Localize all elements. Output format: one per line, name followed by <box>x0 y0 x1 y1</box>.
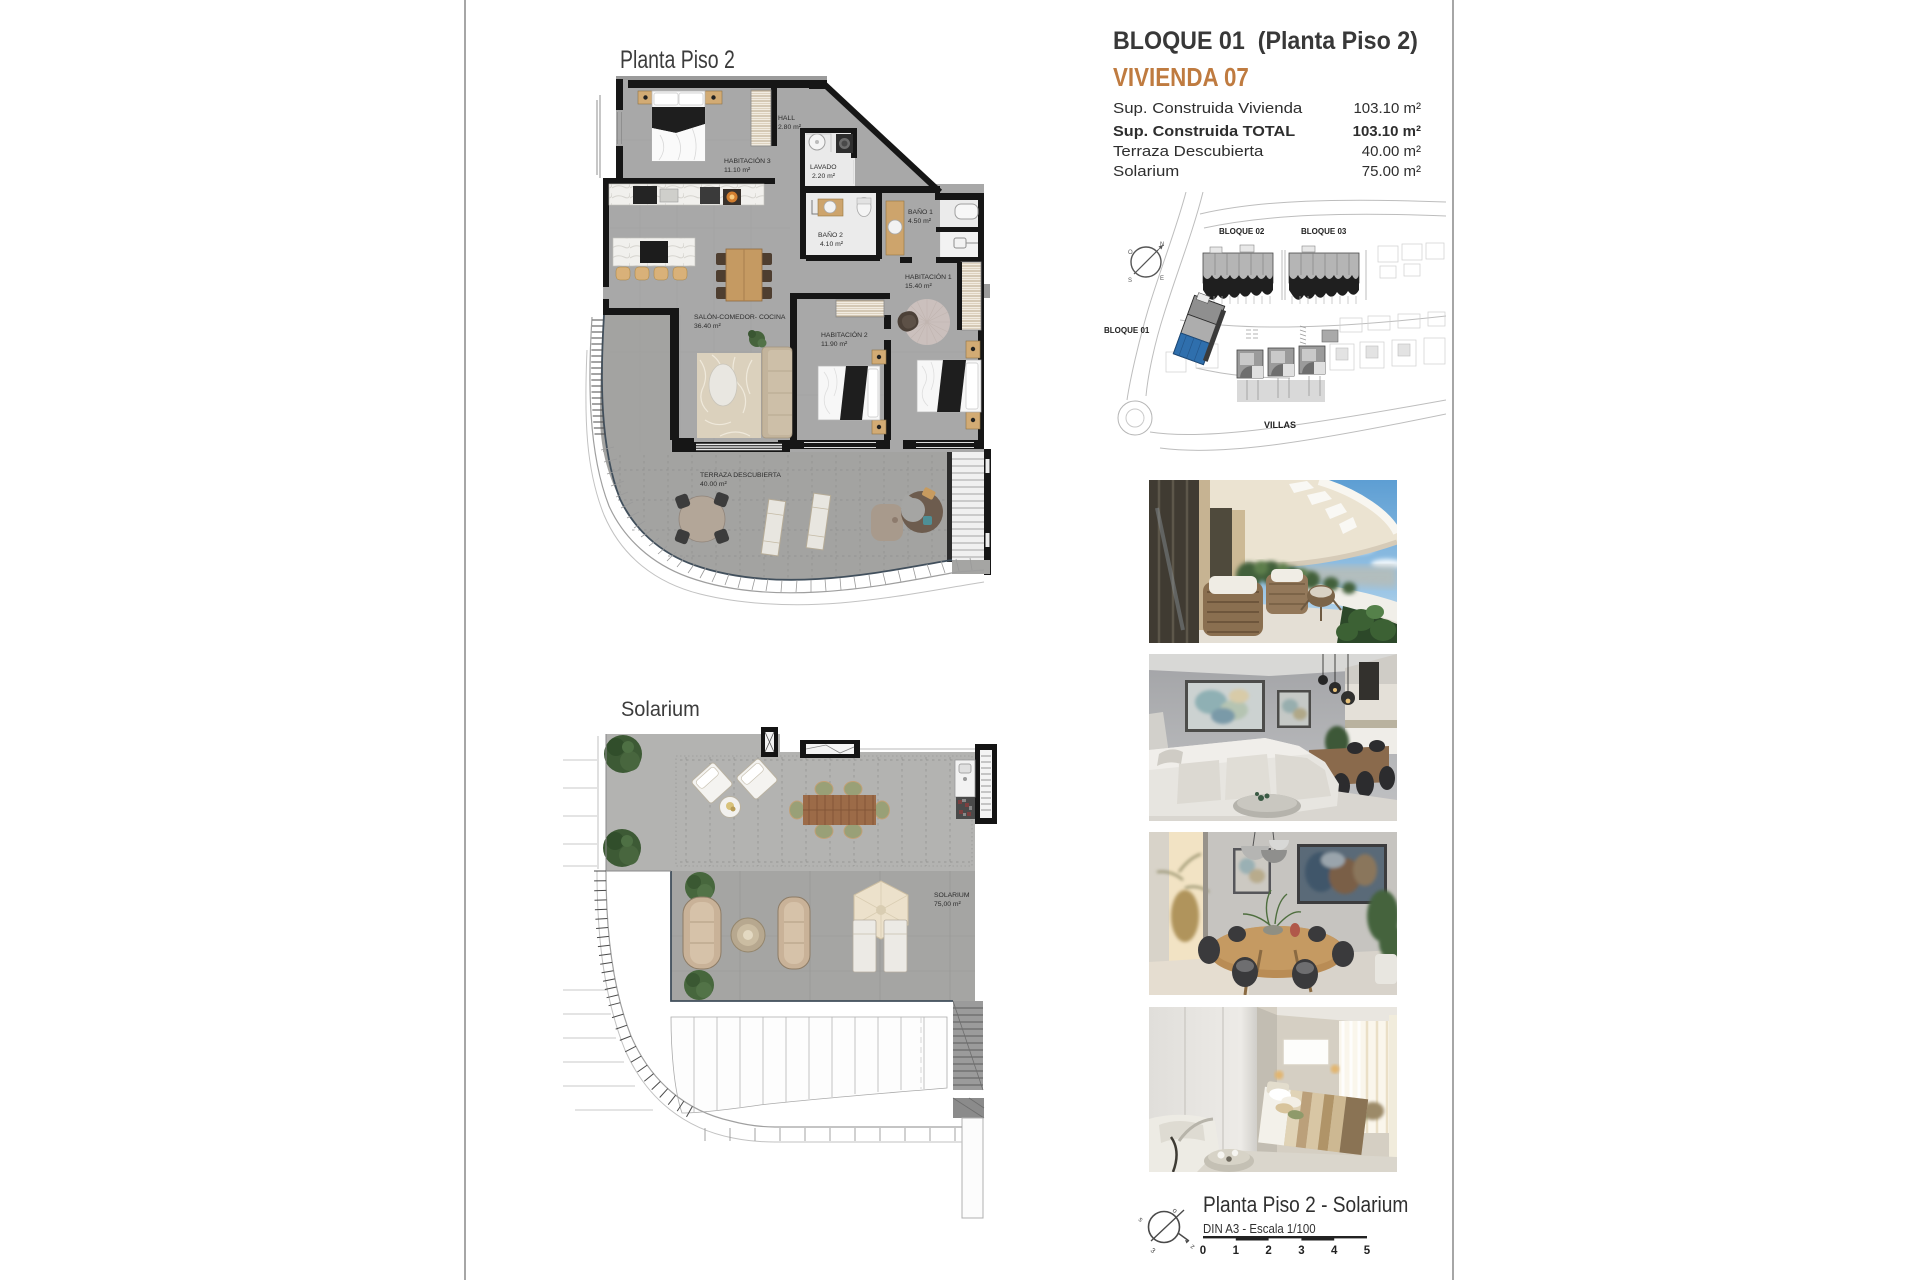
svg-text:HABITACIÓN 3: HABITACIÓN 3 <box>724 156 771 165</box>
svg-text:HABITACIÓN 2: HABITACIÓN 2 <box>821 330 868 339</box>
svg-text:0: 0 <box>1200 1245 1206 1257</box>
svg-text:SALÓN-COMEDOR- COCINA: SALÓN-COMEDOR- COCINA <box>694 312 786 321</box>
svg-text:4.10 m²: 4.10 m² <box>820 241 844 248</box>
svg-text:4: 4 <box>1331 1245 1338 1257</box>
svg-text:N: N <box>1160 242 1164 248</box>
svg-text:LAVADO: LAVADO <box>810 164 837 171</box>
svg-text:3: 3 <box>1298 1245 1304 1257</box>
svg-text:11.90 m²: 11.90 m² <box>821 341 848 348</box>
svg-text:S: S <box>1128 278 1132 284</box>
svg-text:HABITACIÓN 1: HABITACIÓN 1 <box>905 272 952 281</box>
svg-text:40.00 m²: 40.00 m² <box>700 481 728 488</box>
svg-text:2: 2 <box>1265 1245 1271 1257</box>
svg-text:z: z <box>1189 1243 1197 1251</box>
svg-text:5: 5 <box>1364 1245 1371 1257</box>
svg-text:3: 3 <box>1149 1247 1157 1255</box>
svg-text:75,00 m²: 75,00 m² <box>934 901 962 908</box>
svg-text:36.40 m²: 36.40 m² <box>694 323 722 330</box>
svg-text:VILLAS: VILLAS <box>1264 420 1296 430</box>
svg-text:SOLARIUM: SOLARIUM <box>934 892 970 899</box>
svg-text:2.20 m²: 2.20 m² <box>812 173 836 180</box>
svg-text:BLOQUE 01: BLOQUE 01 <box>1104 326 1150 335</box>
svg-text:O: O <box>1128 250 1133 256</box>
svg-text:4.50 m²: 4.50 m² <box>908 218 932 225</box>
svg-text:E: E <box>1160 276 1164 282</box>
svg-text:BAÑO 2: BAÑO 2 <box>818 230 843 239</box>
svg-text:BLOQUE 03: BLOQUE 03 <box>1301 227 1347 236</box>
svg-text:BLOQUE 02: BLOQUE 02 <box>1219 227 1265 236</box>
svg-text:1: 1 <box>1233 1245 1240 1257</box>
svg-text:s: s <box>1137 1216 1145 1224</box>
svg-text:TERRAZA DESCUBIERTA: TERRAZA DESCUBIERTA <box>700 472 781 479</box>
svg-text:BAÑO 1: BAÑO 1 <box>908 207 933 216</box>
svg-text:15.40 m²: 15.40 m² <box>905 283 933 290</box>
svg-text:2.80 m²: 2.80 m² <box>778 124 802 131</box>
svg-text:HALL: HALL <box>778 115 795 122</box>
svg-text:11.10 m²: 11.10 m² <box>724 167 751 174</box>
